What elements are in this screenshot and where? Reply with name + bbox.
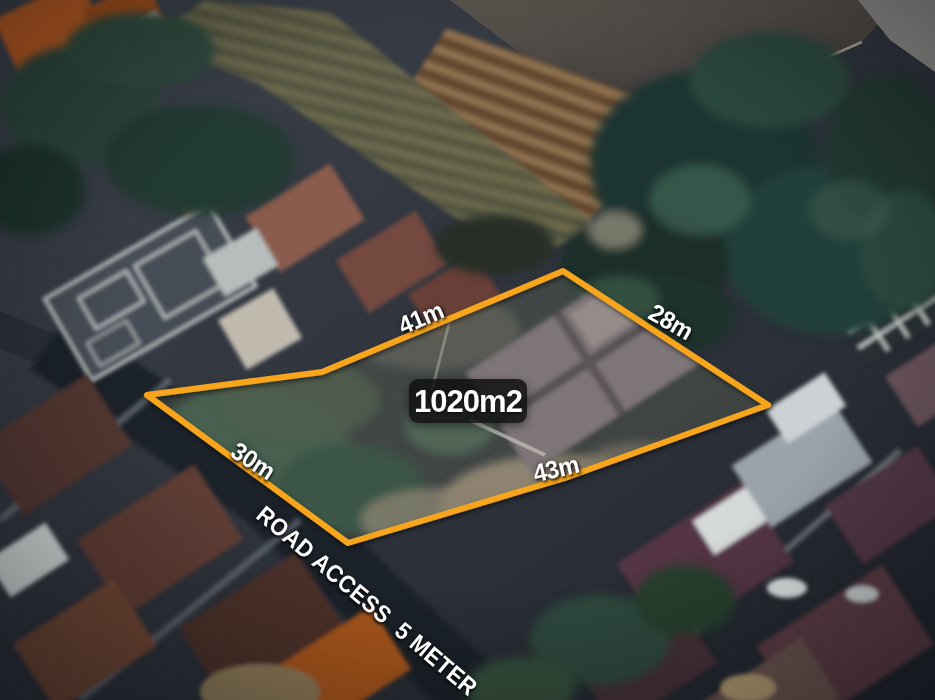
satellite-photo bbox=[0, 0, 935, 700]
vignette bbox=[0, 0, 935, 700]
area-value: 1020m2 bbox=[414, 386, 522, 417]
area-badge: 1020m2 bbox=[409, 379, 527, 423]
aerial-plot-map: 41m 28m 30m 43m 1020m2 ROAD ACCESS 5 MET… bbox=[0, 0, 935, 700]
